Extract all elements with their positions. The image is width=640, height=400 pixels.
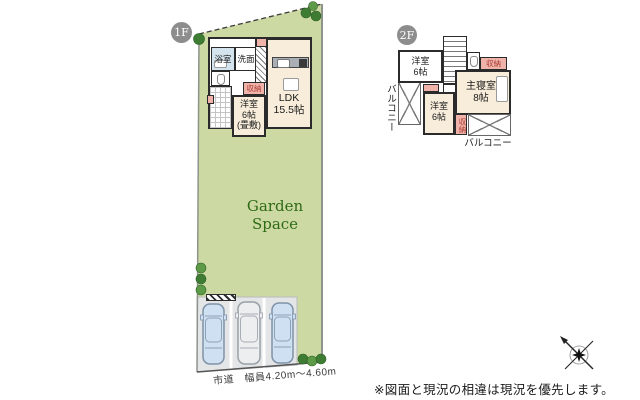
compass-icon xyxy=(560,336,593,369)
stove-icon xyxy=(299,59,307,67)
floor1-tatami-room-label: 洋室 6帖 (畳敷) xyxy=(232,99,266,131)
floor2-balcony-left-label: バルコニー xyxy=(383,77,396,139)
floor2-room-top-label: 洋室 6帖 xyxy=(398,56,443,77)
disclaimer-text: ※図面と現況の相違は現況を優先します。 xyxy=(374,379,614,398)
floorplan-page: 1F 浴室 洗面 収納 洋室 6帖 (畳敷) LDK 15.5帖 Garden … xyxy=(0,0,640,400)
floor2-badge: 2F xyxy=(397,25,417,45)
toilet-icon xyxy=(470,56,478,67)
car xyxy=(270,303,296,363)
floor2-balcony-bottom-label: バルコニー xyxy=(455,138,521,149)
floor2-balcony-left xyxy=(398,82,421,125)
floor1-wall-closet xyxy=(207,95,214,104)
floor2-hall-closet xyxy=(423,84,439,92)
floor1-closet-label: 収納 xyxy=(243,85,265,94)
floor2-closet-top-label: 収納 xyxy=(480,60,507,69)
floor2-balcony-bottom xyxy=(468,114,511,136)
floor2-master-bedroom-label: 主寝室 8帖 xyxy=(455,81,507,105)
kitchen-sink-icon xyxy=(277,59,290,68)
floor1-badge: 1F xyxy=(171,22,192,43)
floor1-entrance xyxy=(209,86,232,129)
dining-table-icon xyxy=(283,78,299,91)
car xyxy=(236,302,263,364)
floor2-closet-bottom-label: 収納 xyxy=(456,116,466,134)
floor1-washroom-label: 洗面 xyxy=(235,54,257,64)
car xyxy=(201,304,227,364)
toilet-icon xyxy=(217,74,225,85)
retaining-wall-hatch xyxy=(206,294,236,301)
floor2-room-bottom-label: 洋室 6帖 xyxy=(423,101,455,122)
floor1-ldk-label: LDK 15.5帖 xyxy=(266,92,312,117)
garden-space-label: Garden Space xyxy=(222,197,328,233)
floor1-bathroom-label: 浴室 xyxy=(211,54,235,64)
